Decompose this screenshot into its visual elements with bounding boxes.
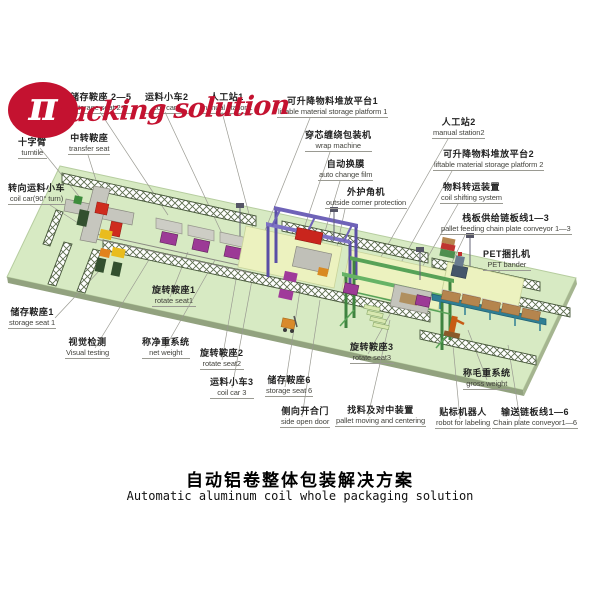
label-liftable-platform-1: 可升降物料堆放平台1liftable material storage plat… — [277, 96, 388, 118]
label-liftable-platform-2: 可升降物料堆放平台2liftable material storage plat… — [433, 149, 544, 171]
label-transfer-seat: 中转鞍座transfer seat — [68, 133, 110, 155]
diagram-labels: 储存鞍座 2—5storage seat 2-5运料小车2coil car2人工… — [0, 0, 600, 600]
label-chain-plate-conveyor: 输送链板线1—6Chain plate conveyor1—6 — [492, 407, 578, 429]
label-pallet-moving-centering: 找料及对中装置pallet moving and centering — [335, 405, 426, 427]
label-pet-bander: PET捆扎机PET bander — [483, 249, 531, 271]
label-pallet-feeding-conveyor: 栈板供给链板线1—3pallet feeding chain plate con… — [440, 213, 572, 235]
label-rotate-seat-3: 旋转鞍座3rotate seat3 — [350, 342, 394, 364]
label-side-open-door: 侧向开合门side open door — [280, 406, 330, 428]
page-title-en: Automatic aluminum coil whole packaging … — [0, 489, 600, 503]
label-coil-car-90-turn: 转向运料小车coil car(90° turn) — [8, 183, 65, 205]
label-turntile: 十字臂turntile — [18, 137, 47, 159]
page-title-zh: 自动铝卷整体包装解决方案 — [0, 466, 600, 491]
label-net-weight: 称净重系统net weight — [142, 337, 190, 359]
label-visual-testing: 视觉检测Visual testing — [65, 337, 110, 359]
label-rotate-seat-1: 旋转鞍座1rotate seat1 — [152, 285, 196, 307]
label-storage-seat-1: 储存鞍座1storage seat 1 — [8, 307, 56, 329]
label-outside-corner-protection: 外护角机outside corner protection — [325, 187, 407, 209]
page: 储存鞍座 2—5storage seat 2-5运料小车2coil car2人工… — [0, 0, 600, 600]
label-coil-shifting-system: 物料转运装置coil shifting system — [440, 182, 503, 204]
label-rotate-seat-2: 旋转鞍座2rotate seat2 — [200, 348, 244, 370]
label-gross-weight: 称毛重系统gross weight — [463, 368, 511, 390]
label-coil-car-3: 运料小车3coil car 3 — [210, 377, 254, 399]
label-storage-seat-6: 储存鞍座6storage seat 6 — [265, 375, 313, 397]
label-robot-for-labeling: 贴标机器人robot for labeling — [435, 407, 491, 429]
label-auto-change-film: 自动换膜auto change film — [318, 159, 373, 181]
label-wrap-machine: 穿芯缠绕包装机wrap machine — [305, 130, 372, 152]
label-manual-station-2: 人工站2manual station2 — [432, 117, 485, 139]
